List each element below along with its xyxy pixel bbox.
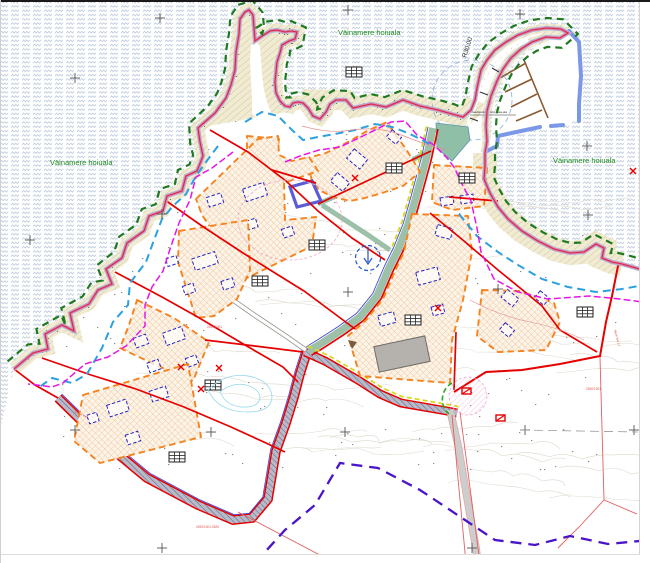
svg-text:Väinamere hoiuala: Väinamere hoiuala bbox=[553, 156, 616, 165]
svg-text:Väinamere hoiuala: Väinamere hoiuala bbox=[50, 158, 113, 167]
svg-text:24903:001: 24903:001 bbox=[586, 387, 601, 391]
svg-text:Väinamere hoiuala: Väinamere hoiuala bbox=[338, 28, 401, 37]
svg-text:24903:001:0520: 24903:001:0520 bbox=[196, 525, 219, 529]
svg-text:24903:001: 24903:001 bbox=[207, 325, 222, 329]
